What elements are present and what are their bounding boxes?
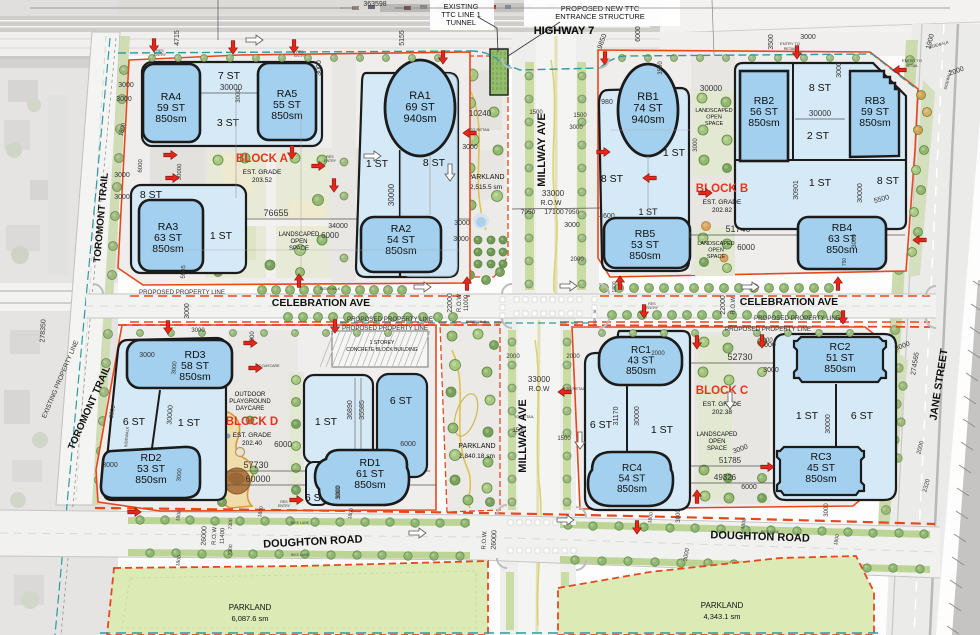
svg-text:33000: 33000 — [542, 189, 565, 198]
svg-text:BIKE LANE: BIKE LANE — [291, 553, 310, 557]
svg-text:MILLWAY AVE: MILLWAY AVE — [517, 399, 529, 472]
svg-text:5155: 5155 — [399, 30, 406, 46]
svg-text:36890: 36890 — [347, 400, 354, 420]
svg-text:MILLWAY AVE: MILLWAY AVE — [536, 113, 548, 186]
svg-text:3000: 3000 — [800, 34, 816, 41]
svg-text:6000: 6000 — [138, 159, 144, 173]
svg-text:3000: 3000 — [852, 234, 858, 248]
svg-text:5945: 5945 — [181, 265, 187, 279]
svg-text:2000: 2000 — [570, 257, 584, 263]
svg-text:2 ST: 2 ST — [807, 130, 830, 142]
svg-text:30000: 30000 — [857, 183, 864, 203]
svg-text:11400: 11400 — [220, 527, 227, 544]
svg-text:1500: 1500 — [529, 110, 543, 116]
svg-text:HIGHWAY 7: HIGHWAY 7 — [534, 25, 595, 37]
svg-text:1500: 1500 — [573, 113, 587, 119]
svg-text:6000: 6000 — [737, 243, 755, 252]
svg-text:3000: 3000 — [693, 138, 699, 152]
svg-text:R.O.W: R.O.W — [541, 200, 562, 207]
svg-text:PROPOSED PROPERTY LINE: PROPOSED PROPERTY LINE — [342, 325, 428, 332]
svg-text:ENTRY TO: ENTRY TO — [780, 41, 800, 46]
svg-text:8 ST: 8 ST — [601, 173, 624, 185]
svg-text:6000: 6000 — [321, 231, 339, 240]
svg-text:CONCRETE BLOCK BUILDING: CONCRETE BLOCK BUILDING — [346, 347, 418, 353]
svg-text:202.38: 202.38 — [712, 409, 732, 416]
svg-text:60000: 60000 — [245, 474, 270, 484]
svg-text:363598: 363598 — [363, 1, 386, 8]
svg-text:51785: 51785 — [719, 456, 742, 465]
svg-text:7300: 7300 — [228, 518, 235, 530]
svg-text:57730: 57730 — [243, 460, 268, 470]
svg-text:3000: 3000 — [114, 172, 130, 179]
svg-text:750: 750 — [842, 258, 848, 267]
svg-text:33000: 33000 — [528, 375, 551, 384]
svg-text:3000: 3000 — [191, 328, 205, 334]
svg-text:1 ST: 1 ST — [651, 424, 674, 436]
svg-text:1 ST: 1 ST — [315, 416, 338, 428]
svg-text:3000: 3000 — [569, 125, 583, 131]
svg-text:R.O.W: R.O.W — [212, 526, 219, 545]
svg-text:17100: 17100 — [544, 209, 564, 216]
svg-text:3000: 3000 — [763, 367, 779, 374]
svg-text:31170: 31170 — [613, 406, 620, 425]
svg-text:3000: 3000 — [454, 220, 470, 227]
svg-text:PROPOSED PROPERTY LINE: PROPOSED PROPERTY LINE — [139, 289, 225, 296]
svg-text:ENTRY: ENTRY — [278, 504, 291, 508]
svg-text:R.O.W: R.O.W — [529, 386, 550, 393]
svg-text:30000: 30000 — [825, 414, 832, 434]
svg-text:SIDEWALK: SIDEWALK — [320, 286, 341, 291]
svg-text:30901: 30901 — [793, 180, 800, 200]
svg-text:ENTRY: ENTRY — [154, 53, 167, 57]
svg-text:22000: 22000 — [447, 293, 454, 313]
svg-text:52730: 52730 — [727, 352, 752, 362]
svg-text:1 ST: 1 ST — [663, 147, 686, 159]
svg-text:ENTRY: ENTRY — [294, 54, 307, 58]
svg-text:1800: 1800 — [612, 281, 618, 292]
svg-text:34000: 34000 — [328, 223, 348, 230]
svg-text:3000: 3000 — [102, 462, 118, 469]
svg-text:30000: 30000 — [387, 183, 396, 206]
svg-text:6 ST: 6 ST — [590, 419, 613, 431]
svg-text:PROPOSED PROPERTY LINE: PROPOSED PROPERTY LINE — [725, 326, 811, 333]
svg-text:3000: 3000 — [114, 194, 130, 201]
svg-text:2,515.5 sm: 2,515.5 sm — [470, 184, 502, 191]
svg-text:EST. GRADE: EST. GRADE — [703, 401, 742, 408]
svg-text:R.O.W.: R.O.W. — [481, 530, 488, 550]
svg-text:BIKE LANE: BIKE LANE — [291, 521, 310, 525]
svg-text:1 ST: 1 ST — [796, 410, 819, 422]
svg-text:6000: 6000 — [741, 484, 757, 491]
svg-text:2000: 2000 — [506, 354, 520, 360]
svg-text:4,343.1 sm: 4,343.1 sm — [703, 612, 740, 621]
svg-text:TO RETAIL: TO RETAIL — [514, 414, 535, 419]
svg-text:R.O.W.: R.O.W. — [731, 295, 737, 315]
svg-text:22000: 22000 — [720, 295, 727, 315]
svg-text:6000: 6000 — [635, 26, 642, 42]
svg-text:EST. GRADE: EST. GRADE — [243, 169, 282, 176]
svg-text:EST. GRADE: EST. GRADE — [233, 432, 272, 439]
svg-text:3500: 3500 — [768, 34, 775, 50]
svg-text:278350: 278350 — [39, 319, 47, 343]
svg-text:EST. GRADE: EST. GRADE — [703, 199, 742, 206]
svg-text:3000: 3000 — [316, 60, 323, 76]
svg-text:6 ST: 6 ST — [123, 416, 146, 428]
svg-text:RETAIL: RETAIL — [784, 47, 796, 51]
svg-text:3000: 3000 — [453, 236, 469, 243]
svg-text:76655: 76655 — [263, 208, 288, 218]
svg-text:49326: 49326 — [714, 473, 737, 482]
svg-text:3500: 3500 — [658, 61, 664, 75]
svg-text:4715: 4715 — [174, 30, 181, 46]
svg-text:PARKLAND: PARKLAND — [701, 601, 744, 610]
svg-text:3000: 3000 — [336, 485, 342, 499]
svg-text:PROPOSED NEW TTCENTRANCE STRUC: PROPOSED NEW TTCENTRANCE STRUCTURE — [555, 4, 645, 21]
svg-text:R.O.W: R.O.W — [457, 294, 463, 312]
svg-text:ENTRY: ENTRY — [646, 306, 659, 310]
svg-text:1500: 1500 — [512, 428, 526, 434]
svg-text:TO RETAIL: TO RETAIL — [566, 386, 587, 391]
svg-text:3000: 3000 — [824, 503, 830, 517]
svg-text:SIDEWALK: SIDEWALK — [466, 319, 487, 324]
svg-text:CELEBRATION AVE: CELEBRATION AVE — [272, 297, 370, 309]
svg-text:3000: 3000 — [184, 303, 191, 319]
svg-text:7950: 7950 — [521, 209, 536, 216]
svg-text:26000: 26000 — [200, 526, 208, 546]
svg-text:7950: 7950 — [565, 209, 580, 216]
svg-text:202.82: 202.82 — [712, 207, 732, 214]
svg-text:PARKLAND: PARKLAND — [458, 443, 495, 450]
svg-text:ENTRY: ENTRY — [324, 159, 337, 163]
svg-text:2,840.18 sm: 2,840.18 sm — [459, 453, 495, 460]
svg-text:6000: 6000 — [274, 440, 292, 449]
svg-text:3000: 3000 — [236, 89, 242, 103]
svg-text:RETAIL: RETAIL — [906, 64, 918, 68]
svg-text:7300: 7300 — [228, 544, 235, 556]
svg-text:BLOCK A: BLOCK A — [236, 153, 288, 165]
svg-text:3000: 3000 — [564, 222, 580, 229]
svg-text:8 ST: 8 ST — [809, 82, 832, 94]
svg-text:3000: 3000 — [118, 82, 134, 89]
svg-text:3000: 3000 — [836, 62, 843, 78]
svg-text:PARKLAND: PARKLAND — [467, 174, 504, 181]
svg-text:PROPOSED PROPERTY LINE: PROPOSED PROPERTY LINE — [754, 315, 840, 322]
svg-text:BLOCK C: BLOCK C — [696, 385, 748, 397]
svg-text:2000: 2000 — [651, 351, 665, 357]
svg-text:202.40: 202.40 — [242, 440, 262, 447]
svg-text:EXISTINGTTC LINE 1TUNNEL: EXISTINGTTC LINE 1TUNNEL — [441, 2, 481, 27]
svg-text:1 ST: 1 ST — [178, 417, 201, 429]
svg-text:26000: 26000 — [490, 530, 498, 550]
svg-text:11000: 11000 — [464, 294, 470, 311]
svg-text:3000: 3000 — [171, 360, 178, 374]
svg-text:3000: 3000 — [139, 352, 155, 359]
svg-text:980: 980 — [601, 99, 613, 106]
svg-text:30000: 30000 — [809, 109, 832, 118]
svg-text:7 ST: 7 ST — [218, 70, 241, 82]
svg-text:CELEBRATION AVE: CELEBRATION AVE — [740, 296, 838, 308]
svg-text:35585: 35585 — [359, 400, 366, 420]
svg-text:3000: 3000 — [116, 96, 132, 103]
svg-text:6 ST: 6 ST — [390, 395, 413, 407]
svg-text:1 ST: 1 ST — [210, 230, 233, 242]
svg-text:6 ST: 6 ST — [851, 410, 874, 422]
svg-text:30000: 30000 — [634, 406, 641, 426]
svg-text:203.52: 203.52 — [252, 177, 272, 184]
svg-text:8 ST: 8 ST — [877, 175, 900, 187]
svg-text:BLOCK D: BLOCK D — [226, 416, 278, 428]
svg-text:TO DAYCARE: TO DAYCARE — [256, 364, 280, 368]
svg-text:3 ST: 3 ST — [217, 117, 240, 129]
svg-text:1 ST: 1 ST — [809, 177, 832, 189]
svg-text:6000: 6000 — [400, 441, 416, 448]
svg-text:1 STOREY: 1 STOREY — [370, 340, 395, 346]
svg-text:1 ST: 1 ST — [366, 158, 389, 170]
svg-text:TO RETAIL: TO RETAIL — [470, 127, 491, 132]
svg-text:ENTRY TO: ENTRY TO — [902, 58, 922, 63]
svg-text:3000: 3000 — [462, 144, 478, 151]
svg-text:10240: 10240 — [469, 109, 492, 118]
svg-text:2000: 2000 — [566, 354, 580, 360]
svg-text:3000: 3000 — [676, 509, 682, 523]
svg-text:8 ST: 8 ST — [423, 157, 446, 169]
svg-text:3000: 3000 — [176, 467, 183, 481]
svg-text:4600: 4600 — [599, 213, 615, 220]
svg-text:PARKLAND: PARKLAND — [229, 603, 272, 612]
svg-text:1500: 1500 — [557, 436, 571, 442]
svg-text:30000: 30000 — [700, 84, 723, 93]
svg-text:PROPOSED PROPERTY LINE: PROPOSED PROPERTY LINE — [347, 316, 433, 323]
svg-text:6,087.6 sm: 6,087.6 sm — [231, 614, 268, 623]
svg-text:30000: 30000 — [166, 405, 174, 425]
